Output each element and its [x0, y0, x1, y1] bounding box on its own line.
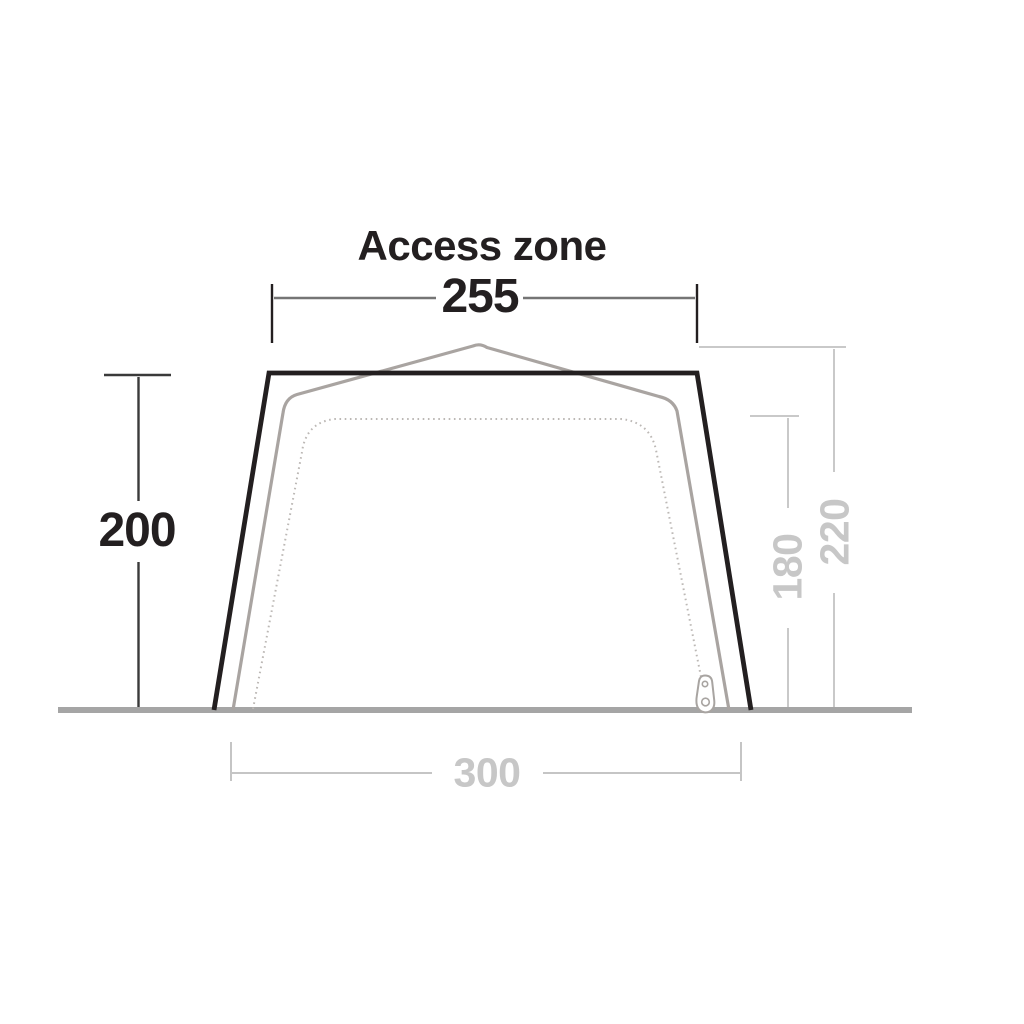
diagram-title: Access zone [358, 225, 607, 267]
door-opening-dotted-line [253, 419, 703, 709]
dimension-label-frame-height: 200 [98, 507, 175, 555]
dimension-label-access-width: 255 [441, 273, 518, 321]
tent-dimension-diagram: Access zone 255 200 180 220 300 [0, 0, 1024, 1024]
dimension-label-base-width: 300 [454, 753, 521, 794]
zipper-pull-icon [696, 676, 714, 713]
tent-frame-outline [214, 373, 751, 710]
dimension-label-door-height: 180 [768, 534, 809, 601]
dimension-label-peak-height: 220 [815, 499, 856, 566]
tent-fabric-line [233, 345, 729, 710]
